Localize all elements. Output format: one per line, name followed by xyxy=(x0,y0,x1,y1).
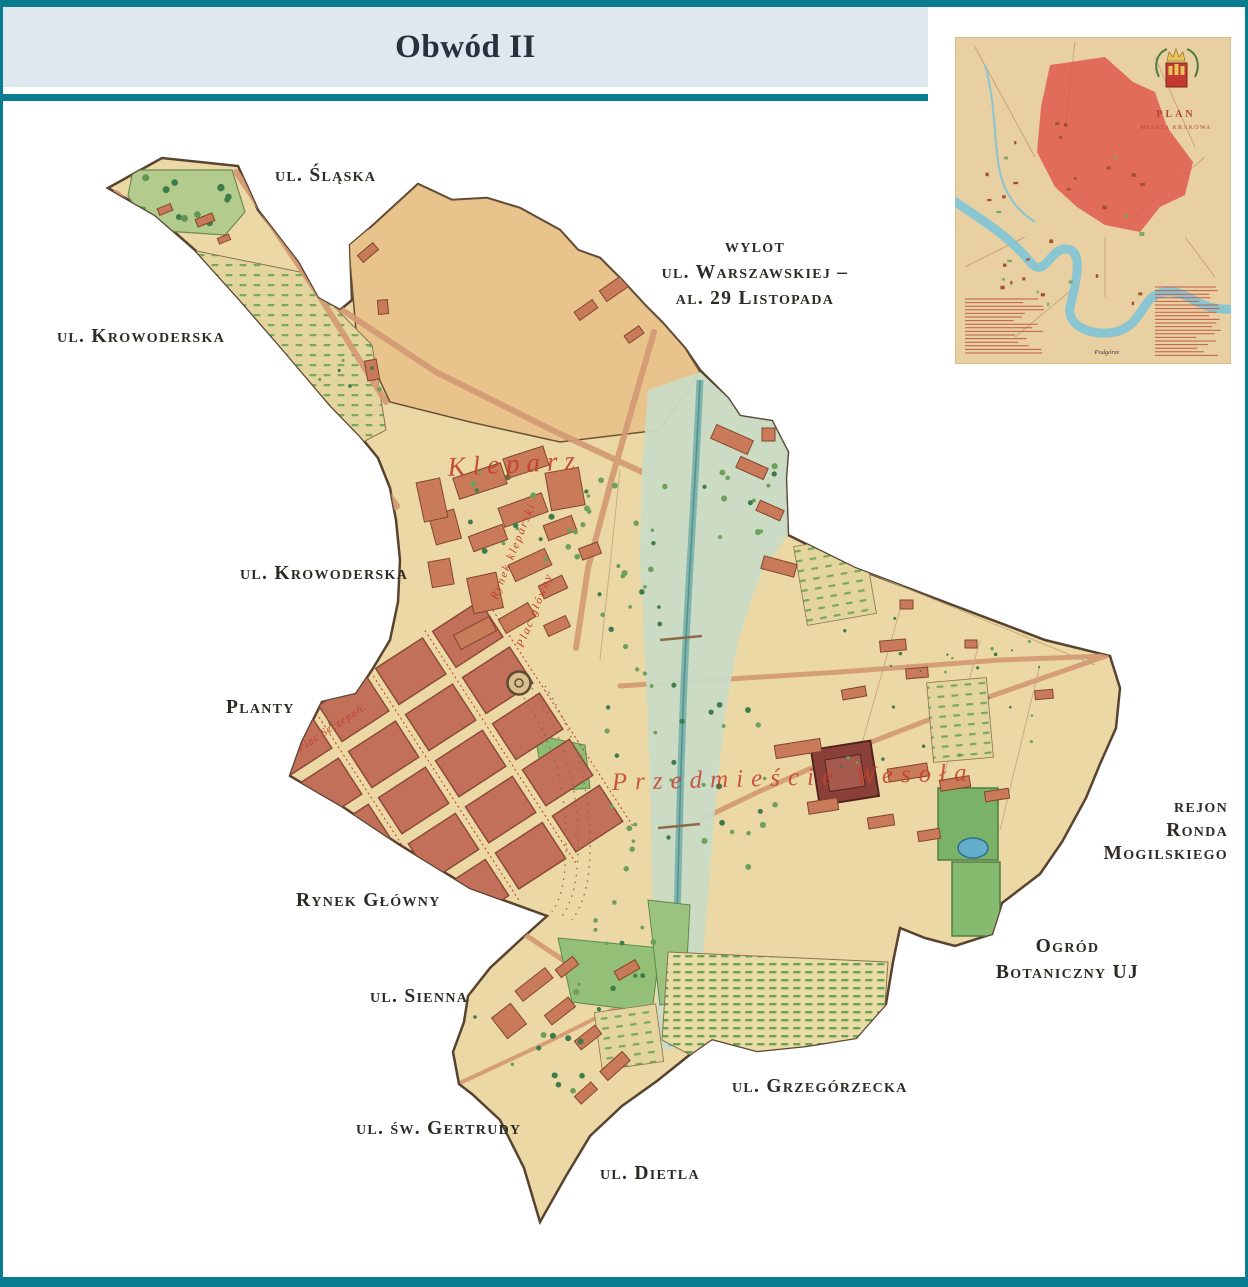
page: Obwód II xyxy=(0,0,1248,1287)
street-label-sienna: ul. Sienna xyxy=(370,984,468,1009)
inset-map: PLAN MIASTA KRAKOWA Podgórze xyxy=(955,37,1231,364)
street-label-grzegorzecka: ul. Grzegórzecka xyxy=(732,1074,908,1099)
inset-map-svg: PLAN MIASTA KRAKOWA Podgórze xyxy=(955,37,1231,364)
street-label-planty: Planty xyxy=(226,695,295,720)
inset-caption: Podgórze xyxy=(1094,349,1120,356)
street-label-ogrod-botaniczny: Ogród Botaniczny UJ xyxy=(960,934,1175,986)
street-label-rynek-glowny: Rynek Główny xyxy=(296,888,441,913)
street-label-krowoderska-2: ul. Krowoderska xyxy=(240,561,408,586)
street-label-krowoderska-1: ul. Krowoderska xyxy=(57,324,225,349)
street-label-gertrudy: ul. św. Gertrudy xyxy=(356,1116,521,1141)
inset-plan-title: PLAN xyxy=(1156,109,1195,120)
street-label-dietla: ul. Dietla xyxy=(600,1161,700,1186)
street-label-rondo-mogilskie: rejon Ronda Mogilskiego xyxy=(1040,795,1228,866)
inset-plan-subtitle: MIASTA KRAKOWA xyxy=(1140,125,1211,131)
street-label-slaska: ul. Śląska xyxy=(275,163,376,188)
street-label-wylot-warszawskiej: wylot ul. Warszawskiej – al. 29 Listopad… xyxy=(635,234,875,312)
